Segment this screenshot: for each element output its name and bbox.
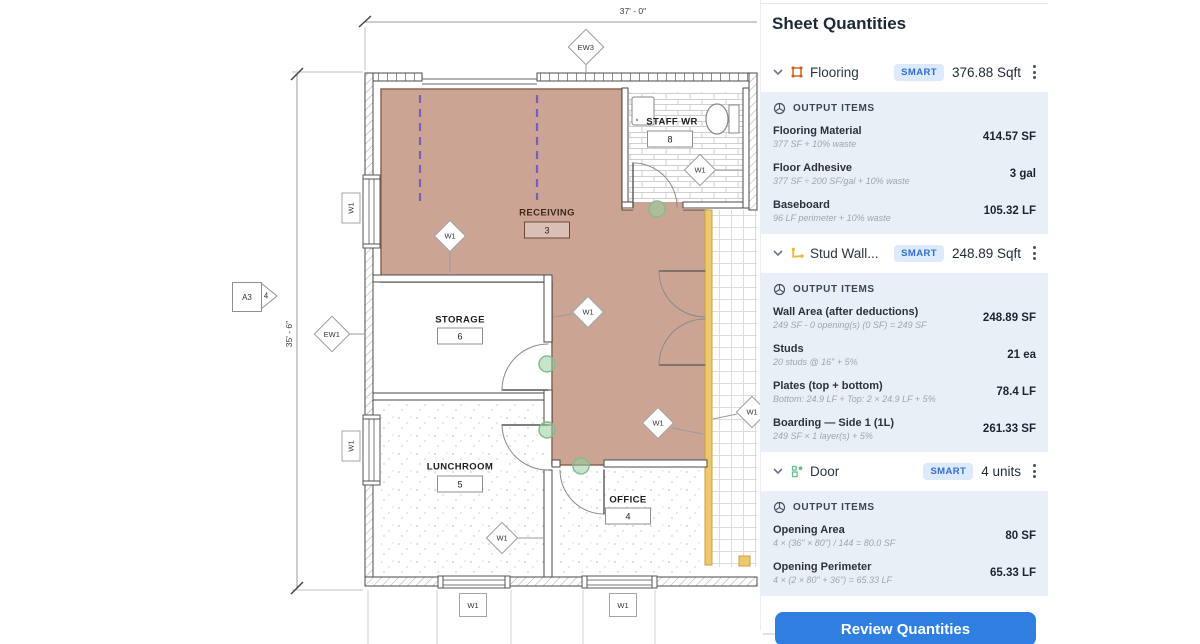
- kebab-menu-icon[interactable]: [1031, 63, 1038, 81]
- exterior-wall: [510, 577, 582, 586]
- section-name: Door: [810, 464, 839, 479]
- output-item-title: Opening Perimeter: [773, 561, 892, 573]
- output-item-formula: 249 SF × 1 layer(s) + 5%: [773, 431, 894, 441]
- cube-icon: [773, 501, 786, 514]
- kebab-menu-icon[interactable]: [1031, 462, 1038, 480]
- section-header-flooring[interactable]: Flooring SMART 376.88 Sqft: [761, 60, 1048, 84]
- lunchroom-floor: [381, 400, 544, 577]
- output-item-title: Baseboard: [773, 199, 891, 211]
- output-item-value: 414.57 SF: [975, 131, 1036, 143]
- output-item-value: 3 gal: [1002, 168, 1036, 180]
- window-symbol: [438, 576, 510, 588]
- chevron-down-icon[interactable]: [773, 250, 783, 256]
- interior-wall: [544, 390, 552, 425]
- cube-icon: [773, 283, 786, 296]
- output-item-formula: 20 studs @ 16" + 5%: [773, 357, 858, 367]
- output-item-value: 80 SF: [997, 530, 1036, 542]
- interior-wall: [373, 393, 544, 400]
- output-item: Plates (top + bottom) Bottom: 24.9 LF + …: [773, 374, 1036, 411]
- interior-wall: [743, 88, 749, 208]
- output-item: Floor Adhesive 377 SF ÷ 200 SF/gal + 10%…: [773, 156, 1036, 193]
- output-item-value: 21 ea: [999, 349, 1036, 361]
- section-header-stud-wall[interactable]: Stud Wall... SMART 248.89 Sqft: [761, 241, 1048, 265]
- output-items-block: OUTPUT ITEMS Wall Area (after deductions…: [761, 273, 1048, 452]
- output-item-formula: 4 × (36" × 80") / 144 = 80.0 SF: [773, 538, 895, 548]
- smart-badge: SMART: [894, 245, 944, 262]
- output-item: Opening Perimeter 4 × (2 × 80" + 36") = …: [773, 555, 1036, 592]
- sheet-quantities-panel: Sheet Quantities Flooring SMART 376.88 S…: [760, 0, 1048, 630]
- area-takeoff-icon: [790, 65, 804, 79]
- output-item-title: Opening Area: [773, 524, 895, 536]
- interior-wall: [683, 202, 749, 208]
- output-item: Boarding — Side 1 (1L) 249 SF × 1 layer(…: [773, 411, 1036, 448]
- output-item-title: Plates (top + bottom): [773, 380, 936, 392]
- interior-wall: [544, 275, 552, 342]
- smart-badge: SMART: [923, 463, 973, 480]
- linear-takeoff-icon: [790, 246, 804, 260]
- output-items-header: OUTPUT ITEMS: [773, 281, 1036, 297]
- output-item-formula: 96 LF perimeter + 10% waste: [773, 213, 891, 223]
- interior-wall: [552, 460, 560, 467]
- output-item: Baseboard 96 LF perimeter + 10% waste 10…: [773, 193, 1036, 230]
- toilet-fixture: [706, 104, 739, 134]
- exterior-wall: [537, 73, 757, 81]
- dimension-ticks: [291, 16, 371, 594]
- interior-wall: [373, 275, 544, 282]
- section-quantity: 376.88 Sqft: [952, 65, 1021, 80]
- chevron-down-icon[interactable]: [773, 468, 783, 474]
- section-name: Stud Wall...: [810, 246, 879, 261]
- app-canvas: 37' - 0" 35' - 6" A3 4 EW3 EW1 W1 W1 W1 …: [0, 0, 1200, 644]
- output-item-title: Floor Adhesive: [773, 162, 910, 174]
- corridor-tile-floor: [712, 210, 757, 567]
- panel-title: Sheet Quantities: [772, 14, 1048, 34]
- chevron-down-icon[interactable]: [773, 69, 783, 75]
- kebab-menu-icon[interactable]: [1031, 244, 1038, 262]
- output-item-title: Studs: [773, 343, 858, 355]
- output-item-title: Wall Area (after deductions): [773, 306, 927, 318]
- exterior-wall: [749, 73, 757, 210]
- interior-wall: [622, 202, 633, 208]
- window-symbol: [363, 175, 380, 248]
- output-item-title: Flooring Material: [773, 125, 862, 137]
- output-items-header: OUTPUT ITEMS: [773, 499, 1036, 515]
- exterior-wall: [365, 248, 373, 415]
- output-item-value: 105.32 LF: [976, 205, 1036, 217]
- interior-wall: [604, 460, 707, 467]
- output-item-formula: 4 × (2 × 80" + 36") = 65.33 LF: [773, 575, 892, 585]
- output-item-value: 248.89 SF: [975, 312, 1036, 324]
- output-item-formula: Bottom: 24.9 LF + Top: 2 × 24.9 LF + 5%: [773, 394, 936, 404]
- section-marker-pointer: [261, 283, 277, 309]
- output-item: Flooring Material 377 SF + 10% waste 414…: [773, 119, 1036, 156]
- section-name: Flooring: [810, 65, 859, 80]
- output-item-title: Boarding — Side 1 (1L): [773, 417, 894, 429]
- stud-wall-takeoff-highlight: [739, 556, 750, 566]
- review-quantities-button[interactable]: Review Quantities: [775, 612, 1036, 644]
- output-item-formula: 377 SF ÷ 200 SF/gal + 10% waste: [773, 176, 910, 186]
- interior-wall: [544, 470, 552, 577]
- exterior-wall: [657, 577, 757, 586]
- count-takeoff-icon: [790, 464, 804, 478]
- output-item: Opening Area 4 × (36" × 80") / 144 = 80.…: [773, 518, 1036, 555]
- output-item: Wall Area (after deductions) 249 SF - 0 …: [773, 300, 1036, 337]
- panel-top-divider: [761, 3, 1048, 4]
- window-symbol: [582, 576, 657, 588]
- smart-badge: SMART: [894, 64, 944, 81]
- stud-wall-takeoff-highlight[interactable]: [705, 210, 712, 565]
- exterior-wall: [365, 73, 422, 81]
- output-item-value: 78.4 LF: [988, 386, 1036, 398]
- window-symbol: [363, 415, 380, 485]
- output-items-block: OUTPUT ITEMS Flooring Material 377 SF + …: [761, 92, 1048, 234]
- exterior-wall: [365, 73, 373, 175]
- output-items-header: OUTPUT ITEMS: [773, 100, 1036, 116]
- output-item-formula: 377 SF + 10% waste: [773, 139, 862, 149]
- exterior-wall: [365, 485, 373, 585]
- section-header-door[interactable]: Door SMART 4 units: [761, 459, 1048, 483]
- interior-wall: [622, 88, 628, 202]
- output-item-formula: 249 SF - 0 opening(s) (0 SF) = 249 SF: [773, 320, 927, 330]
- exterior-wall: [365, 577, 438, 586]
- section-quantity: 248.89 Sqft: [952, 246, 1021, 261]
- sink-fixture: [632, 97, 654, 125]
- output-item-value: 65.33 LF: [982, 567, 1036, 579]
- output-item-value: 261.33 SF: [975, 423, 1036, 435]
- office-floor: [560, 467, 707, 577]
- output-item: Studs 20 studs @ 16" + 5% 21 ea: [773, 337, 1036, 374]
- output-items-block: OUTPUT ITEMS Opening Area 4 × (36" × 80"…: [761, 491, 1048, 596]
- section-quantity: 4 units: [981, 464, 1021, 479]
- cube-icon: [773, 102, 786, 115]
